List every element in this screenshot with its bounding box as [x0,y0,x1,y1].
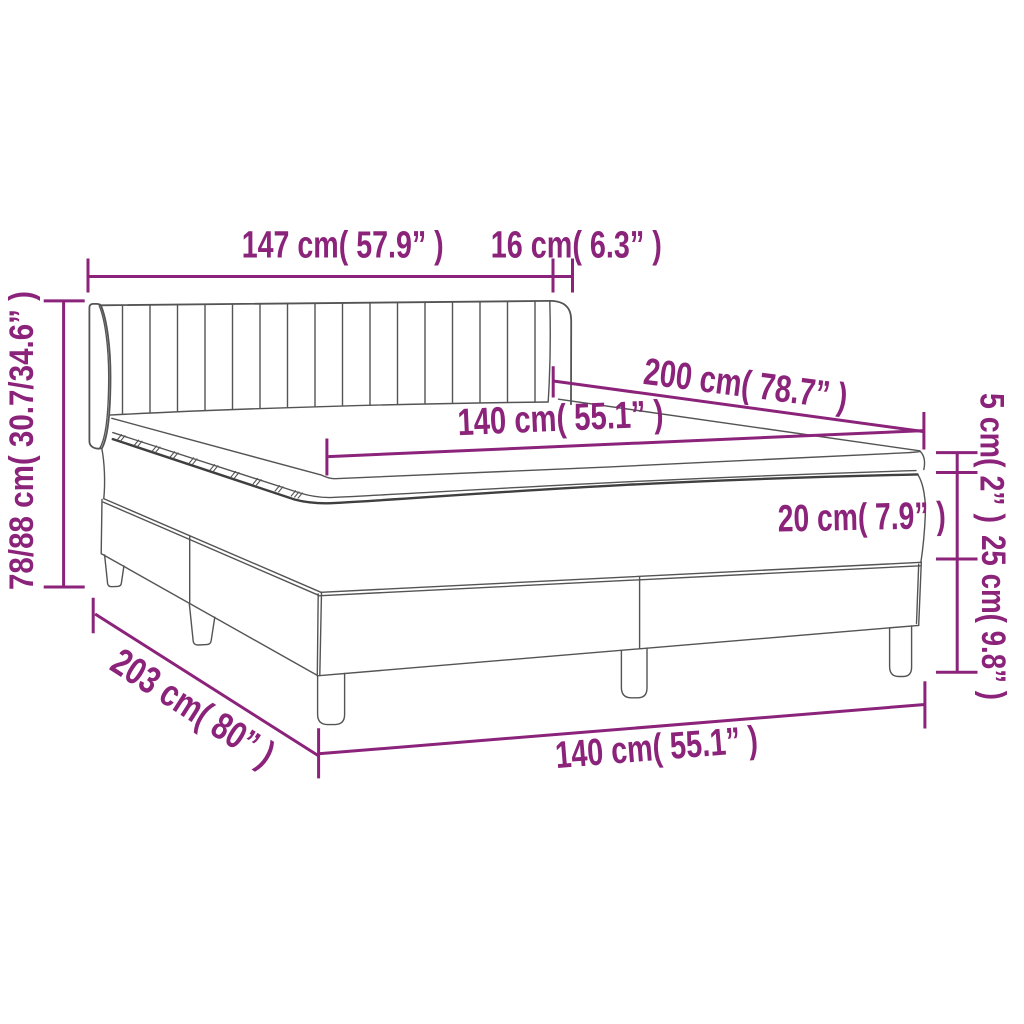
svg-text:20 cm( 7.9” ): 20 cm( 7.9” ) [777,495,946,541]
svg-text:16 cm( 6.3” ): 16 cm( 6.3” ) [491,225,662,267]
svg-text:147 cm( 57.9” ): 147 cm( 57.9” ) [242,225,444,267]
svg-text:140 cm( 55.1” ): 140 cm( 55.1” ) [457,393,665,444]
svg-text:5 cm( 2” ): 5 cm( 2” ) [973,393,1011,523]
svg-text:25 cm( 9.8” ): 25 cm( 9.8” ) [974,535,1012,700]
svg-text:78/88 cm( 30.7/34.6” ): 78/88 cm( 30.7/34.6” ) [3,291,41,590]
